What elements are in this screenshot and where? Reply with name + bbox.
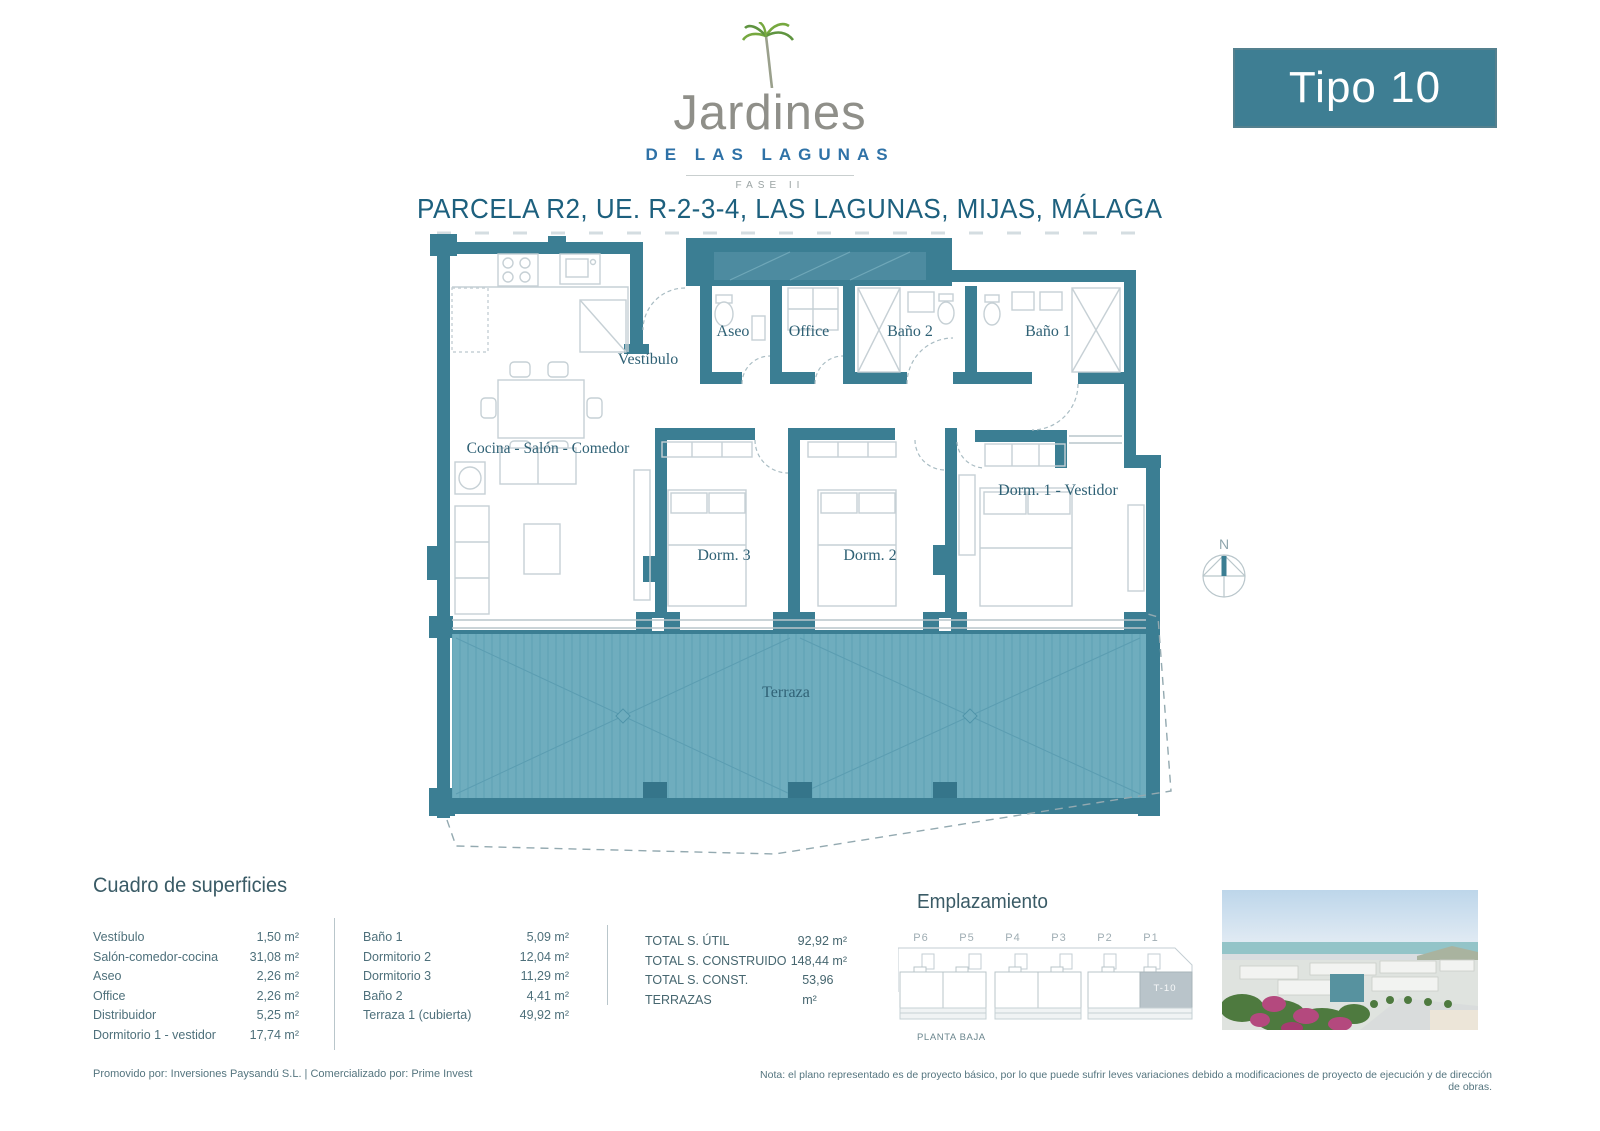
surface-value: 11,29 m² xyxy=(521,967,569,987)
plot-label: P2 xyxy=(1082,932,1128,944)
surface-label: Aseo xyxy=(93,967,122,987)
entry-stairs xyxy=(714,252,926,280)
room-label-office: Office xyxy=(789,323,830,340)
surface-value: 2,26 m² xyxy=(257,967,299,987)
surface-row: Aseo 2,26 m² xyxy=(93,967,299,987)
compass-north-label: N xyxy=(1219,536,1229,552)
surface-row: Distribuidor 5,25 m² xyxy=(93,1006,299,1026)
total-value: 148,44 m² xyxy=(791,952,847,972)
plot-label: P3 xyxy=(1036,932,1082,944)
footer-promoter: Promovido por: Inversiones Paysandú S.L.… xyxy=(93,1068,472,1080)
surface-row: Baño 1 5,09 m² xyxy=(363,928,569,948)
room-label-terraza: Terraza xyxy=(762,684,810,701)
total-label: TOTAL S. CONST. TERRAZAS xyxy=(645,971,802,1010)
total-value: 53,96 m² xyxy=(802,971,847,1010)
surface-value: 1,50 m² xyxy=(257,928,299,948)
surface-row: Dormitorio 1 - vestidor 17,74 m² xyxy=(93,1026,299,1046)
room-label-cocina: Cocina - Salón - Comedor xyxy=(467,440,631,457)
surface-value: 2,26 m² xyxy=(257,987,299,1007)
plot-labels: P6 P5 P4 P3 P2 P1 xyxy=(898,932,1174,944)
footer-note: Nota: el plano representado es de proyec… xyxy=(760,1069,1492,1093)
surfaces-column-1: Vestíbulo 1,50 m² Salón-comedor-cocina 3… xyxy=(93,928,299,1045)
plot-label: P6 xyxy=(898,932,944,944)
surface-value: 17,74 m² xyxy=(250,1026,299,1046)
compass: N xyxy=(1203,536,1245,597)
total-label: TOTAL S. ÚTIL xyxy=(645,932,730,952)
surface-value: 5,09 m² xyxy=(527,928,569,948)
table-divider xyxy=(334,918,335,1050)
surface-label: Dormitorio 1 - vestidor xyxy=(93,1026,216,1046)
surface-row: Salón-comedor-cocina 31,08 m² xyxy=(93,948,299,968)
surface-row: Office 2,26 m² xyxy=(93,987,299,1007)
total-row: TOTAL S. CONST. TERRAZAS 53,96 m² xyxy=(645,971,847,1010)
total-value: 92,92 m² xyxy=(798,932,847,952)
surface-value: 31,08 m² xyxy=(250,948,299,968)
surface-value: 49,92 m² xyxy=(520,1006,569,1026)
surface-label: Dormitorio 3 xyxy=(363,967,431,987)
surface-row: Terraza 1 (cubierta) 49,92 m² xyxy=(363,1006,569,1026)
surface-value: 5,25 m² xyxy=(257,1006,299,1026)
table-divider xyxy=(607,925,608,1005)
surface-value: 4,41 m² xyxy=(527,987,569,1007)
highlighted-unit-label: T-10 xyxy=(1140,972,1190,1004)
surfaces-column-2: Baño 1 5,09 m² Dormitorio 2 12,04 m² Dor… xyxy=(363,928,569,1026)
surfaces-heading: Cuadro de superficies xyxy=(93,874,297,898)
room-label-bano1: Baño 1 xyxy=(1025,323,1071,340)
total-label: TOTAL S. CONSTRUIDO xyxy=(645,952,786,972)
surface-label: Baño 2 xyxy=(363,987,403,1007)
surfaces-totals: TOTAL S. ÚTIL 92,92 m² TOTAL S. CONSTRUI… xyxy=(645,932,847,1010)
surface-label: Salón-comedor-cocina xyxy=(93,948,218,968)
room-label-dorm1: Dorm. 1 - Vestidor xyxy=(998,482,1118,499)
room-label-dorm3: Dorm. 3 xyxy=(697,547,750,564)
surface-label: Dormitorio 2 xyxy=(363,948,431,968)
plot-label: P4 xyxy=(990,932,1036,944)
surface-row: Dormitorio 2 12,04 m² xyxy=(363,948,569,968)
surface-label: Office xyxy=(93,987,125,1007)
total-row: TOTAL S. ÚTIL 92,92 m² xyxy=(645,932,847,952)
plot-label: P5 xyxy=(944,932,990,944)
surface-label: Vestíbulo xyxy=(93,928,144,948)
site-plan-caption: PLANTA BAJA xyxy=(917,1032,986,1043)
room-label-dorm2: Dorm. 2 xyxy=(843,547,896,564)
plot-label: P1 xyxy=(1128,932,1174,944)
room-label-aseo: Aseo xyxy=(717,323,750,340)
surface-label: Terraza 1 (cubierta) xyxy=(363,1006,471,1026)
surface-row: Dormitorio 3 11,29 m² xyxy=(363,967,569,987)
development-render-photo xyxy=(1222,890,1478,1030)
surface-row: Vestíbulo 1,50 m² xyxy=(93,928,299,948)
emplazamiento-heading: Emplazamiento xyxy=(917,890,1055,914)
room-label-bano2: Baño 2 xyxy=(887,323,933,340)
room-label-vestibulo: Vestíbulo xyxy=(618,351,678,368)
surface-row: Baño 2 4,41 m² xyxy=(363,987,569,1007)
total-row: TOTAL S. CONSTRUIDO 148,44 m² xyxy=(645,952,847,972)
terrace xyxy=(452,634,1146,798)
surface-label: Distribuidor xyxy=(93,1006,156,1026)
surface-label: Baño 1 xyxy=(363,928,403,948)
surface-value: 12,04 m² xyxy=(520,948,569,968)
